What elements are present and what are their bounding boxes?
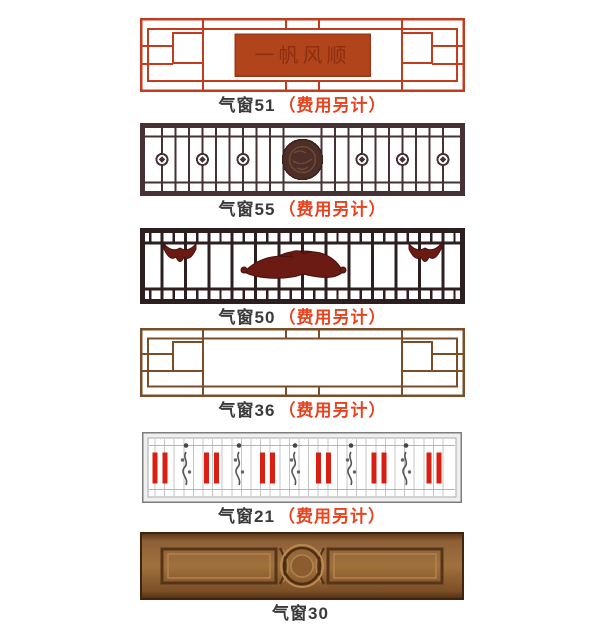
extra-cost-note: （费用另计） [278,200,386,219]
product-item-36: 气窗36（费用另计） [140,328,465,421]
product-label: 气窗30 [140,604,464,624]
product-name: 气窗55 [219,200,276,219]
extra-cost-note: （费用另计） [278,96,386,115]
product-name: 气窗50 [219,308,276,327]
product-label: 气窗55（费用另计） [140,200,465,220]
product-item-50: 气窗50（费用另计） [140,228,465,328]
product-label: 气窗36（费用另计） [140,401,465,421]
product-name: 气窗51 [219,96,276,115]
plaque-calligraphy-text: 一帆风顺 [255,44,351,67]
product-label: 气窗21（费用另计） [142,507,462,527]
calligraphy-plaque: 一帆风顺 [235,34,370,76]
inner-glass [148,438,456,497]
center-fu-medallion [283,140,323,180]
transom-21-image [142,432,462,503]
product-item-30: 气窗30 [140,532,464,624]
product-name: 气窗36 [219,401,276,420]
transom-36-image [140,328,465,397]
product-item-55: 气窗55（费用另计） [140,123,465,220]
extra-cost-note: （费用另计） [278,308,386,327]
extra-cost-note: （费用另计） [278,401,386,420]
product-label: 气窗51（费用另计） [140,96,465,116]
transom-55-image [140,123,465,196]
product-name: 气窗21 [218,507,275,526]
transom-30-image [140,532,464,600]
product-name: 气窗30 [272,604,329,623]
product-label: 气窗50（费用另计） [140,308,465,328]
brown-lattice-frame [141,329,464,396]
product-catalog: 一帆风顺 气窗51（费用另计） [0,0,600,628]
transom-51-image: 一帆风顺 [140,18,465,92]
product-item-51: 一帆风顺 气窗51（费用另计） [140,18,465,116]
product-item-21: 气窗21（费用另计） [142,432,462,527]
extra-cost-note: （费用另计） [278,507,386,526]
transom-50-image [140,228,465,304]
